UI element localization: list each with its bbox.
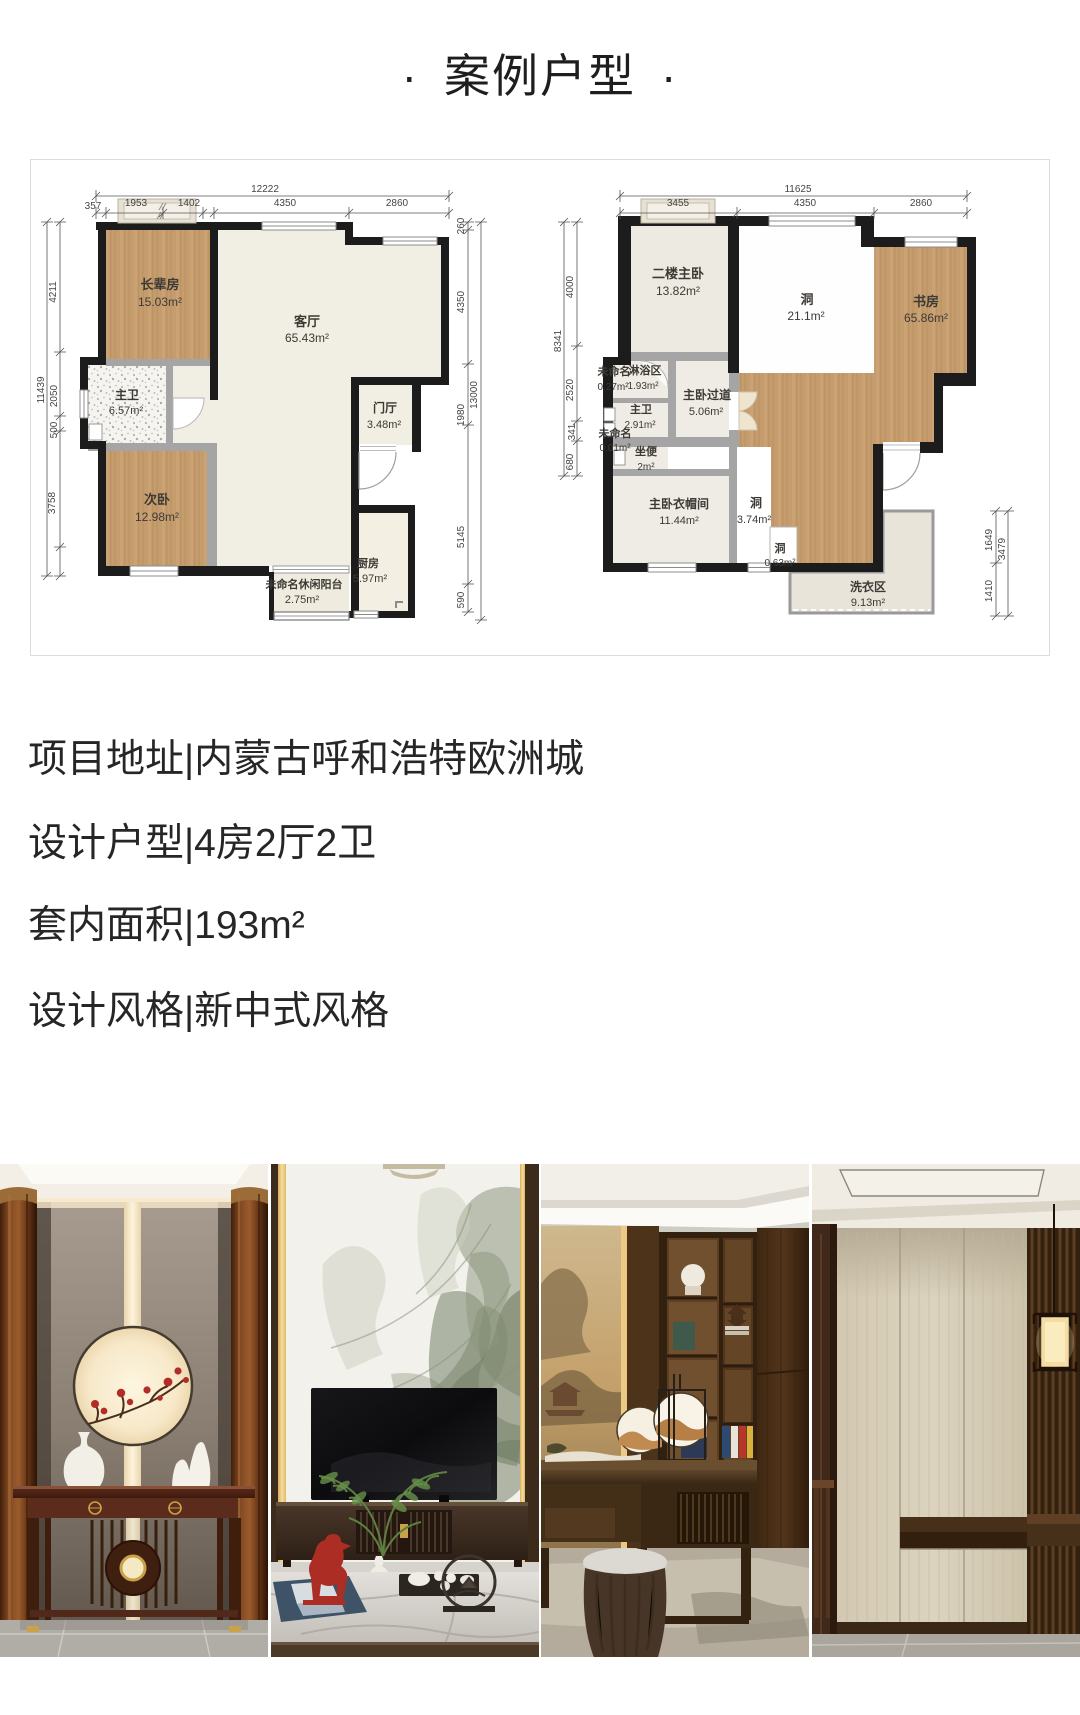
svg-text:3.74m²: 3.74m² (737, 514, 772, 526)
svg-text:1649: 1649 (984, 528, 995, 551)
svg-text:590: 590 (456, 591, 467, 608)
svg-text:4211: 4211 (48, 281, 59, 303)
svg-text:3455: 3455 (667, 198, 690, 209)
svg-text:9.13m²: 9.13m² (851, 597, 886, 609)
svg-text:次卧: 次卧 (144, 492, 170, 507)
svg-text:坐便: 坐便 (635, 444, 658, 458)
svg-text:2860: 2860 (910, 198, 933, 209)
svg-text:65.43m²: 65.43m² (285, 331, 329, 345)
svg-text:0.01m²: 0.01m² (599, 443, 631, 454)
svg-text:11.44m²: 11.44m² (659, 515, 699, 527)
svg-text:680: 680 (565, 453, 576, 470)
svg-text:3758: 3758 (47, 491, 58, 514)
svg-text:0.27m²: 0.27m² (597, 382, 629, 393)
svg-text:2050: 2050 (49, 384, 60, 407)
svg-text:0.63m²: 0.63m² (764, 558, 796, 569)
svg-text:1410: 1410 (984, 579, 995, 602)
svg-text:主卧过道: 主卧过道 (683, 387, 731, 402)
svg-text:1402: 1402 (178, 198, 201, 209)
svg-text:4000: 4000 (565, 275, 576, 298)
svg-text:3.48m²: 3.48m² (367, 419, 402, 431)
svg-text:未命名休闲阳台: 未命名休闲阳台 (265, 577, 343, 591)
svg-text:357: 357 (85, 201, 102, 212)
svg-text:淋浴区: 淋浴区 (629, 363, 662, 377)
svg-text:主卧衣帽间: 主卧衣帽间 (649, 496, 709, 511)
svg-text:5.06m²: 5.06m² (689, 406, 724, 418)
svg-text:洗衣区: 洗衣区 (850, 579, 886, 594)
svg-text:65.86m²: 65.86m² (904, 311, 948, 325)
svg-text:8341: 8341 (553, 329, 564, 352)
svg-text:1.93m²: 1.93m² (627, 381, 659, 392)
svg-text:5.97m²: 5.97m² (353, 573, 388, 585)
svg-text:5145: 5145 (456, 525, 467, 548)
svg-text:21.1m²: 21.1m² (787, 309, 824, 323)
svg-text:2520: 2520 (565, 378, 576, 401)
svg-text:3479: 3479 (997, 537, 1008, 560)
svg-text:6.57m²: 6.57m² (109, 405, 144, 417)
svg-text:厨房: 厨房 (357, 556, 379, 570)
svg-text:洞: 洞 (775, 541, 786, 555)
svg-text:15.03m²: 15.03m² (138, 295, 182, 309)
svg-text:12.98m²: 12.98m² (135, 510, 179, 524)
svg-text:洞: 洞 (800, 292, 813, 307)
svg-text:4350: 4350 (274, 198, 297, 209)
svg-text:2.75m²: 2.75m² (285, 594, 320, 606)
svg-text:4350: 4350 (794, 198, 817, 209)
svg-text:主卫: 主卫 (115, 387, 139, 402)
svg-text:1980: 1980 (456, 403, 467, 426)
svg-text:12222: 12222 (251, 184, 279, 195)
svg-text:门厅: 门厅 (373, 400, 397, 415)
svg-text:主卫: 主卫 (630, 402, 652, 416)
svg-text:洞: 洞 (750, 496, 762, 510)
svg-text:13.82m²: 13.82m² (656, 284, 700, 298)
svg-text:长辈房: 长辈房 (140, 277, 179, 292)
svg-text:4350: 4350 (456, 290, 467, 313)
svg-text:341: 341 (567, 423, 578, 440)
svg-text:11625: 11625 (784, 184, 812, 195)
svg-text:2860: 2860 (386, 198, 409, 209)
svg-text:客厅: 客厅 (294, 314, 320, 329)
svg-text:二楼主卧: 二楼主卧 (652, 266, 704, 281)
svg-text:2m²: 2m² (637, 462, 655, 473)
svg-text:500: 500 (49, 421, 60, 438)
svg-text:13000: 13000 (469, 381, 480, 409)
svg-text:未命名: 未命名 (598, 426, 632, 440)
svg-text:11439: 11439 (36, 376, 47, 404)
svg-text:未命名: 未命名 (597, 364, 631, 378)
svg-text:260: 260 (456, 217, 467, 234)
svg-text:书房: 书房 (913, 294, 939, 309)
svg-text:1953: 1953 (125, 198, 148, 209)
